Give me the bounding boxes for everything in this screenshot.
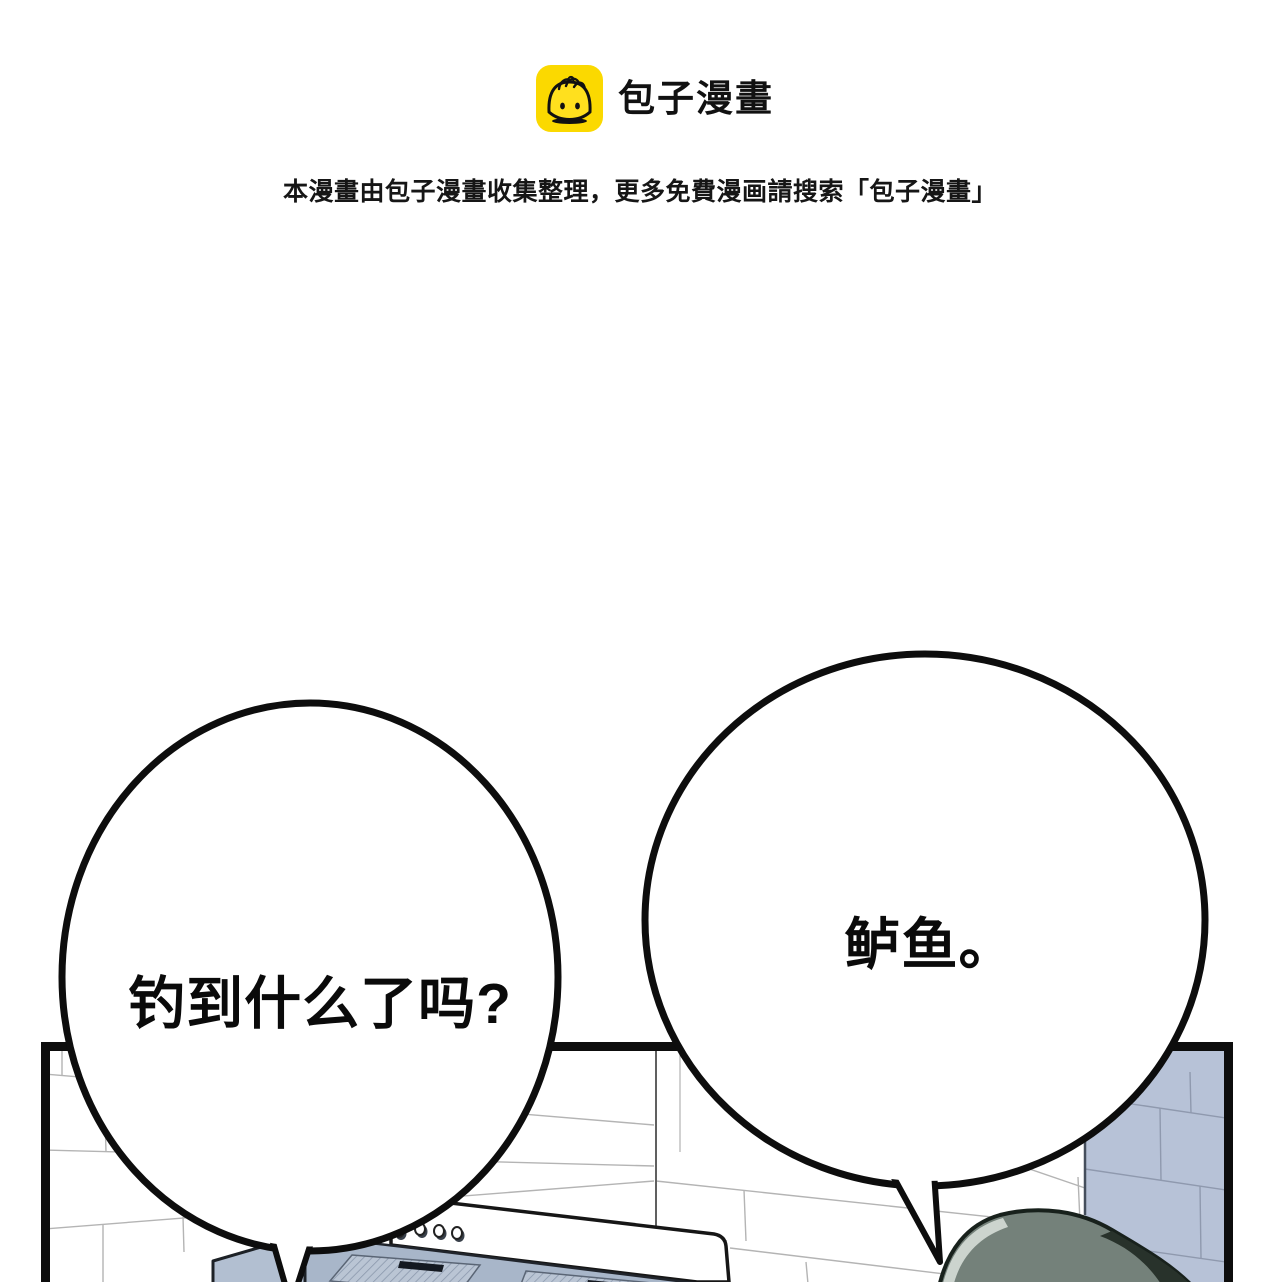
left-bubble-text: 钓到什么了吗? — [118, 958, 522, 1040]
right-bubble-text: 鲈鱼。 — [792, 900, 1068, 981]
comic-panel-illustration — [0, 0, 1280, 1282]
comic-page: 包子漫畫 本漫畫由包子漫畫收集整理，更多免費漫画請搜索「包子漫畫」 — [0, 0, 1280, 1282]
